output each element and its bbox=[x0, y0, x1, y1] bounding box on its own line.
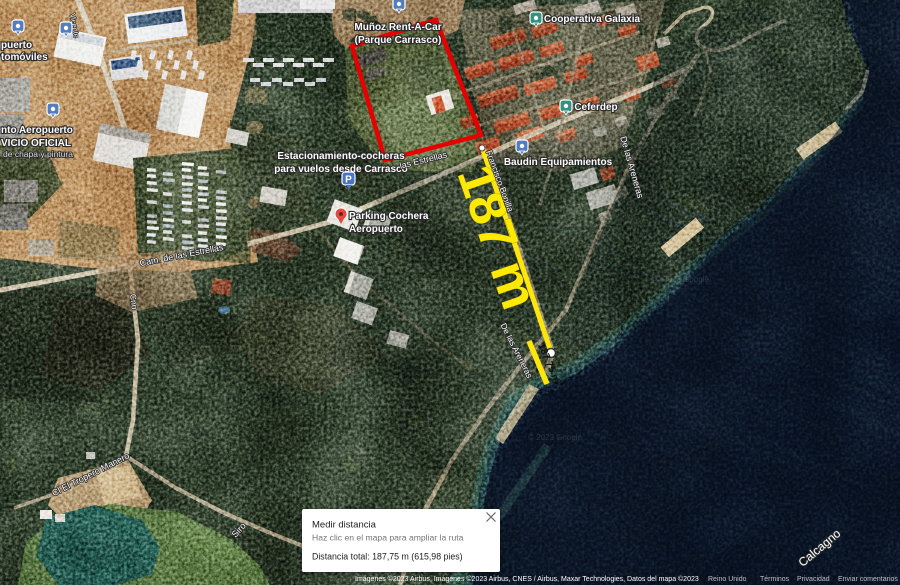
svg-text:Ceferdep: Ceferdep bbox=[574, 102, 617, 113]
svg-text:puerto: puerto bbox=[1, 40, 32, 51]
svg-text:Cl El Tropero Manero: Cl El Tropero Manero bbox=[50, 450, 131, 498]
svg-text:(Parque Carrasco): (Parque Carrasco) bbox=[355, 35, 442, 46]
svg-text:nto Aeropuerto: nto Aeropuerto bbox=[1, 125, 73, 136]
svg-text:Estacionamiento-cocheras: Estacionamiento-cocheras bbox=[277, 151, 405, 162]
svg-text:Reino Unido: Reino Unido bbox=[708, 576, 747, 583]
svg-text:Enviar comentarios: Enviar comentarios bbox=[838, 576, 898, 583]
svg-text:para vuelos desde Carrasco: para vuelos desde Carrasco bbox=[274, 164, 407, 175]
svg-text:P: P bbox=[345, 175, 352, 186]
svg-text:Cooperativa Galaxia: Cooperativa Galaxia bbox=[544, 14, 641, 25]
svg-text:Imágenes ©2023 Airbus, Imágene: Imágenes ©2023 Airbus, Imágenes ©2023 Ai… bbox=[355, 575, 699, 583]
svg-text:© 2023 Google: © 2023 Google bbox=[655, 275, 709, 284]
svg-text:De las Areneras: De las Areneras bbox=[498, 321, 534, 379]
svg-text:Baudin Equipamientos: Baudin Equipamientos bbox=[504, 157, 613, 168]
svg-text:Términos: Términos bbox=[760, 576, 790, 583]
svg-text:Cam. de las Estrellas: Cam. de las Estrellas bbox=[139, 242, 225, 268]
svg-text:Haz clic en el mapa para ampli: Haz clic en el mapa para ampliar la ruta bbox=[312, 533, 464, 543]
svg-text:Parking Cochera: Parking Cochera bbox=[349, 211, 429, 222]
svg-text:tomóviles: tomóviles bbox=[1, 52, 48, 63]
svg-text:Siro: Siro bbox=[230, 521, 248, 540]
svg-text:de chapa y pintura: de chapa y pintura bbox=[3, 149, 73, 159]
svg-text:© 2023 Google: © 2023 Google bbox=[528, 433, 582, 442]
svg-text:Medir distancia: Medir distancia bbox=[312, 520, 377, 531]
svg-text:Distancia total: 187,75 m (615: Distancia total: 187,75 m (615,98 pies) bbox=[312, 552, 463, 562]
svg-text:De las Areneras: De las Areneras bbox=[618, 135, 645, 200]
svg-text:Cno: Cno bbox=[128, 293, 140, 310]
svg-text:Privacidad: Privacidad bbox=[797, 576, 830, 583]
svg-text:Aeropuerto: Aeropuerto bbox=[349, 224, 403, 235]
svg-text:Muñoz Rent-A-Car: Muñoz Rent-A-Car bbox=[354, 22, 441, 33]
svg-text:VICIO OFICIAL: VICIO OFICIAL bbox=[1, 138, 71, 149]
